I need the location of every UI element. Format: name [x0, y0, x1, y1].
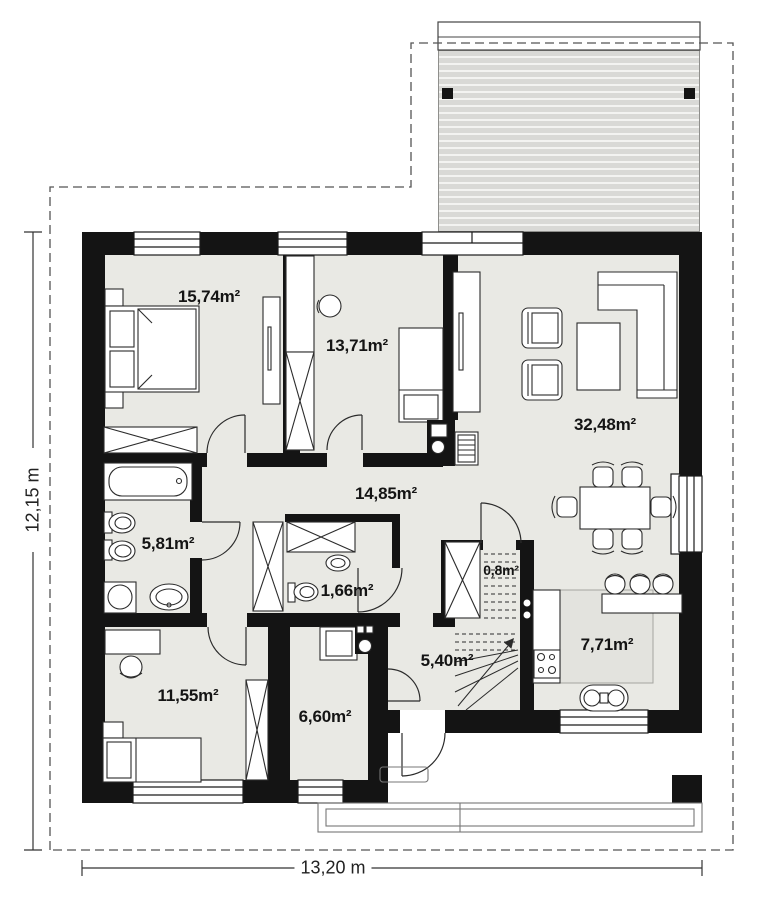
- area-label-kitchen: 7,71m²: [581, 635, 634, 655]
- toilet: [104, 512, 135, 533]
- front-door-opening: [400, 710, 445, 733]
- washbasin: [150, 584, 188, 610]
- front-door: [402, 733, 445, 776]
- area-label-living-room: 32,48m²: [574, 415, 636, 435]
- armchair: [522, 308, 562, 348]
- dining-table: [580, 487, 650, 529]
- terrace-post: [684, 88, 695, 99]
- floor-plan-drawing: [0, 0, 758, 900]
- radiator: [455, 432, 478, 465]
- kitchenette-unit: [427, 420, 455, 466]
- closet: [253, 522, 283, 611]
- tv-cabinet: [453, 272, 480, 412]
- desk: [105, 630, 160, 654]
- window: [133, 780, 243, 803]
- wardrobe: [286, 256, 314, 450]
- nightstand: [105, 289, 123, 306]
- chair: [120, 656, 142, 678]
- terrace-door: [422, 232, 523, 255]
- wall-dot: [524, 612, 531, 619]
- bar-stool: [605, 574, 625, 594]
- cabinet: [287, 522, 355, 552]
- area-label-bedroom-top-left: 15,74m²: [178, 287, 240, 307]
- window: [298, 780, 343, 803]
- bidet: [104, 540, 135, 561]
- area-label-bathroom: 5,81m²: [142, 534, 195, 554]
- window: [560, 710, 648, 733]
- toilet: [288, 583, 318, 602]
- terrace-edge: [438, 22, 700, 99]
- window: [671, 474, 702, 554]
- bar-stool: [653, 574, 673, 594]
- utility-sink-unit: [355, 623, 375, 654]
- window: [134, 232, 200, 255]
- porch-pillar: [672, 775, 702, 803]
- window: [278, 232, 347, 255]
- double-sink: [580, 685, 628, 711]
- dimension-width: 13,20 m: [294, 858, 371, 879]
- terrace-post: [442, 88, 453, 99]
- area-label-utility: 6,60m²: [299, 707, 352, 727]
- stove: [534, 650, 560, 678]
- wardrobe: [246, 680, 268, 780]
- area-label-hall: 14,85m²: [355, 484, 417, 504]
- wall-dot: [524, 600, 531, 607]
- area-label-bedroom-bottom-left: 11,55m²: [158, 686, 219, 706]
- floor-plan: 15,74m² 13,71m² 32,48m² 14,85m² 5,81m² 1…: [0, 0, 758, 900]
- boiler: [320, 627, 357, 660]
- bathtub: [104, 463, 192, 500]
- single-bed: [399, 328, 443, 422]
- armchair: [522, 360, 562, 400]
- washbasin: [326, 555, 350, 571]
- closet: [445, 542, 480, 618]
- coffee-table: [577, 323, 620, 390]
- dimension-height: 12,15 m: [23, 461, 44, 538]
- area-label-wc: 1,66m²: [321, 581, 374, 601]
- bar-stool: [630, 574, 650, 594]
- area-label-room-top-middle: 13,71m²: [326, 336, 388, 356]
- nightstand: [103, 722, 123, 738]
- bar-counter: [602, 594, 682, 613]
- nightstand: [105, 391, 123, 408]
- area-label-entrance-hall: 5,40m²: [421, 651, 474, 671]
- single-bed: [103, 738, 201, 782]
- double-bed: [105, 306, 199, 392]
- area-label-understairs: 0,8m²: [483, 562, 519, 578]
- washing-machine: [104, 582, 136, 613]
- cabinet: [263, 297, 280, 404]
- wardrobe: [104, 427, 197, 453]
